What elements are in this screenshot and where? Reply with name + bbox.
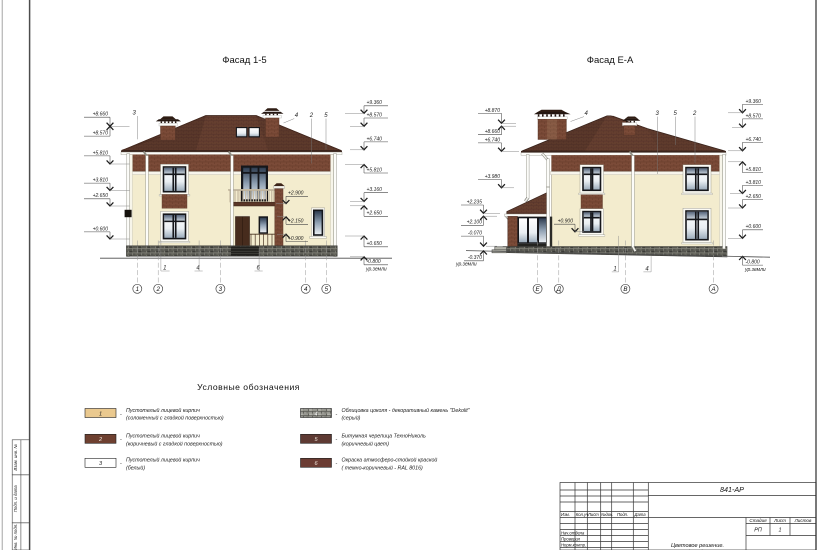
svg-text:1: 1 <box>779 528 782 534</box>
svg-text:1: 1 <box>136 286 139 293</box>
svg-text:841-АР: 841-АР <box>720 485 744 494</box>
svg-text:Пустотелый лицевой кирпич: Пустотелый лицевой кирпич <box>126 457 200 464</box>
svg-text:+2.150: +2.150 <box>288 219 304 225</box>
svg-text:-: - <box>120 411 122 417</box>
svg-text:Нач.отдела: Нач.отдела <box>561 531 585 536</box>
svg-text:ур.земли: ур.земли <box>365 267 387 273</box>
svg-text:1: 1 <box>163 266 166 272</box>
svg-text:-: - <box>120 461 122 467</box>
svg-text:-: - <box>336 461 338 467</box>
svg-text:+6.740: +6.740 <box>367 136 383 142</box>
svg-text:+3.810: +3.810 <box>93 178 109 184</box>
svg-text:3: 3 <box>219 286 223 293</box>
svg-text:(белый): (белый) <box>126 464 145 471</box>
svg-text:(серый): (серый) <box>342 415 361 422</box>
svg-text:-0.800: -0.800 <box>746 260 760 266</box>
svg-text:Битумная черепица ТехноНиколь: Битумная черепица ТехноНиколь <box>342 434 426 440</box>
svg-text:( темно-коричневый - RAL 8016): ( темно-коричневый - RAL 8016) <box>342 464 424 471</box>
svg-text:+2.650: +2.650 <box>746 194 762 200</box>
svg-text:-: - <box>336 411 338 417</box>
svg-text:Цветовое решение.: Цветовое решение. <box>671 543 724 549</box>
svg-text:Пустотелый лицевой кирпич: Пустотелый лицевой кирпич <box>126 433 200 440</box>
svg-text:-: - <box>336 437 338 443</box>
svg-text:Условные обозначения: Условные обозначения <box>197 382 300 392</box>
svg-text:+8.660: +8.660 <box>485 129 501 135</box>
svg-text:+2.900: +2.900 <box>288 191 304 197</box>
svg-text:Облицовка цоколя - декоративны: Облицовка цоколя - декоративный камень "… <box>342 407 471 414</box>
svg-text:+8.660: +8.660 <box>93 112 109 118</box>
svg-text:+0.650: +0.650 <box>367 241 383 247</box>
svg-text:+2.235: +2.235 <box>467 199 483 205</box>
svg-text:Стадия: Стадия <box>749 518 767 523</box>
svg-text:+5.810: +5.810 <box>93 150 109 156</box>
svg-text:+2.650: +2.650 <box>93 193 109 199</box>
svg-text:А: А <box>711 286 716 293</box>
svg-text:Подп.: Подп. <box>617 512 628 517</box>
svg-text:+2.100: +2.100 <box>467 220 483 226</box>
svg-text:+5.810: +5.810 <box>367 167 383 173</box>
svg-text:+8.870: +8.870 <box>485 108 501 114</box>
svg-text:1: 1 <box>613 266 616 272</box>
svg-text:№док.: №док. <box>601 512 613 517</box>
svg-text:В: В <box>623 286 627 293</box>
svg-text:2: 2 <box>309 113 314 119</box>
svg-text:-0.070: -0.070 <box>468 231 482 237</box>
svg-text:+3.810: +3.810 <box>746 180 762 186</box>
svg-text:Лист: Лист <box>587 512 599 517</box>
svg-text:РП: РП <box>754 528 762 534</box>
svg-text:Взам. инв. №: Взам. инв. № <box>13 444 18 471</box>
svg-text:ур.земли: ур.земли <box>744 267 766 273</box>
svg-text:+0.900: +0.900 <box>288 236 304 242</box>
svg-text:Подп. и дата: Подп. и дата <box>13 485 18 513</box>
svg-text:Фасад Е-А: Фасад Е-А <box>587 55 634 66</box>
svg-text:+9.360: +9.360 <box>746 99 762 105</box>
svg-text:+8.570: +8.570 <box>367 112 383 118</box>
svg-text:Пустотелый лицевой кирпич: Пустотелый лицевой кирпич <box>126 407 200 414</box>
svg-text:(коричневый цвет): (коричневый цвет) <box>342 440 390 447</box>
svg-text:Лист: Лист <box>773 518 786 523</box>
svg-text:+3.160: +3.160 <box>367 187 383 193</box>
svg-text:+0.900: +0.900 <box>558 219 574 225</box>
svg-text:+0.600: +0.600 <box>746 224 762 230</box>
svg-text:+6.740: +6.740 <box>485 137 501 143</box>
svg-text:(соломенный с гладкой поверхно: (соломенный с гладкой поверхностью) <box>126 415 224 422</box>
svg-text:2: 2 <box>155 286 160 293</box>
svg-text:+8.570: +8.570 <box>93 131 109 137</box>
svg-text:5: 5 <box>325 286 329 293</box>
svg-text:Проверил: Проверил <box>561 537 581 542</box>
svg-text:-0.800: -0.800 <box>367 259 381 265</box>
svg-text:4: 4 <box>304 286 308 293</box>
svg-text:+3.980: +3.980 <box>485 174 501 180</box>
svg-text:Д: Д <box>556 286 562 293</box>
svg-text:Норм.контр.: Норм.контр. <box>561 543 586 548</box>
svg-text:+5.810: +5.810 <box>746 167 762 173</box>
svg-text:2: 2 <box>692 111 697 117</box>
svg-text:-: - <box>120 437 122 443</box>
svg-text:+8.570: +8.570 <box>746 113 762 119</box>
svg-text:Листов: Листов <box>794 518 812 523</box>
svg-text:+6.740: +6.740 <box>746 137 762 143</box>
svg-text:Дата: Дата <box>634 512 647 517</box>
svg-text:+0.600: +0.600 <box>93 226 109 232</box>
svg-text:4: 4 <box>314 411 317 417</box>
svg-text:Изм.: Изм. <box>561 512 570 517</box>
svg-text:-0.370: -0.370 <box>468 255 482 261</box>
svg-text:Инв. № подл.: Инв. № подл. <box>13 524 18 550</box>
svg-text:(коричневый с гладкой поверхно: (коричневый с гладкой поверхностью) <box>126 440 223 447</box>
svg-text:+2.650: +2.650 <box>367 211 383 217</box>
svg-text:ур.земли: ур.земли <box>455 262 477 268</box>
svg-text:+9.360: +9.360 <box>367 100 383 106</box>
svg-text:Окраска атмосферо-стойкой крас: Окраска атмосферо-стойкой краской <box>342 457 438 464</box>
svg-text:1: 1 <box>99 411 102 417</box>
svg-text:Фасад 1-5: Фасад 1-5 <box>222 55 266 66</box>
